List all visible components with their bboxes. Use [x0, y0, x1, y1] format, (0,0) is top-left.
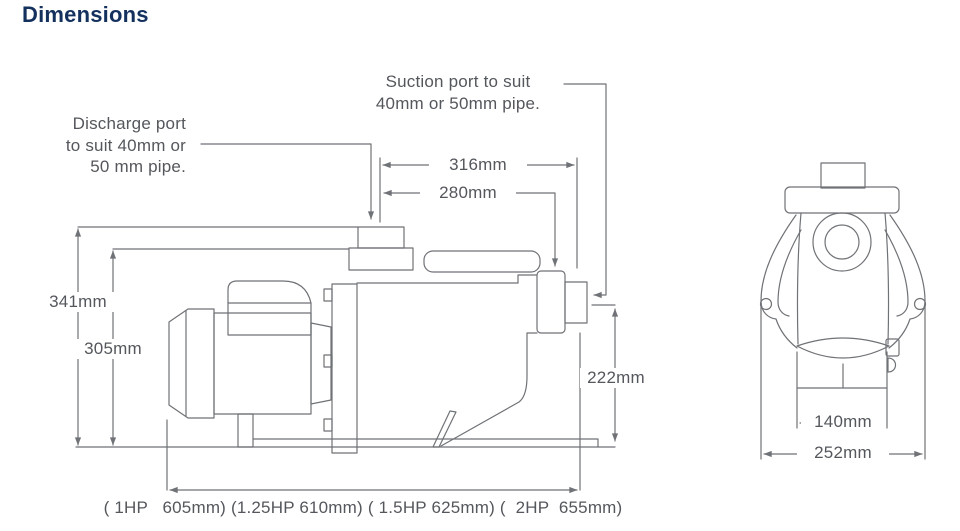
suction-port-label: Suction port to suit 40mm or 50mm pipe.	[353, 71, 563, 114]
front-view-pump-outline	[761, 163, 926, 388]
length-by-horsepower-note: ( 1HP 605mm) (1.25HP 610mm) ( 1.5HP 625m…	[30, 498, 696, 518]
dimension-316mm: 316mm	[429, 155, 527, 175]
dimension-252mm: 252mm	[797, 443, 889, 463]
side-view-pump-outline	[76, 227, 615, 453]
dimension-280mm: 280mm	[420, 183, 516, 203]
dimension-305mm: 305mm	[73, 339, 153, 359]
discharge-port-label: Discharge port to suit 40mm or 50 mm pip…	[36, 113, 186, 178]
dimension-341mm: 341mm	[38, 292, 118, 312]
dimension-222mm: 222mm	[580, 368, 652, 388]
dimension-140mm: 140mm	[801, 412, 885, 432]
dimensions-diagram-page: Dimensions	[0, 0, 960, 531]
